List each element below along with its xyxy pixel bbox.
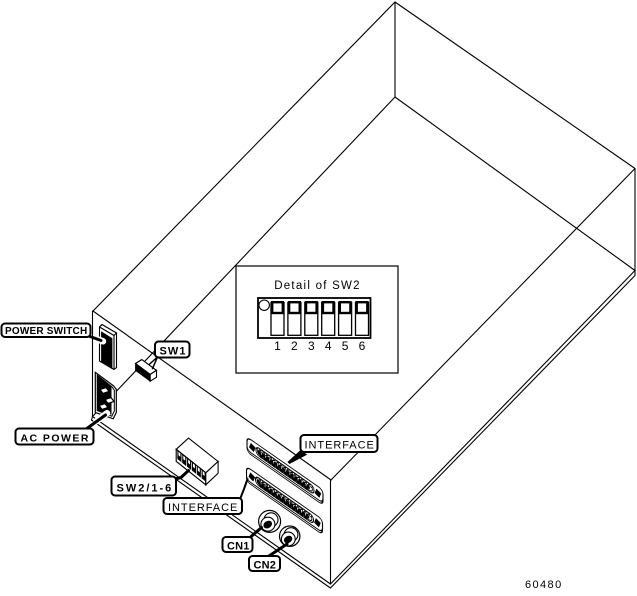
- svg-text:CN2: CN2: [254, 559, 277, 571]
- svg-text:3: 3: [308, 339, 315, 353]
- svg-text:60480: 60480: [525, 579, 563, 591]
- svg-text:INTERFACE: INTERFACE: [168, 502, 238, 514]
- svg-text:SW1: SW1: [160, 345, 187, 357]
- svg-text:AC POWER: AC POWER: [21, 432, 90, 444]
- svg-text:1: 1: [274, 339, 281, 353]
- svg-text:6: 6: [359, 339, 366, 353]
- svg-text:5: 5: [342, 339, 349, 353]
- svg-text:Detail of SW2: Detail of SW2: [274, 280, 361, 292]
- svg-text:SW2/1-6: SW2/1-6: [117, 482, 174, 494]
- svg-text:4: 4: [325, 339, 332, 353]
- svg-text:POWER SWITCH: POWER SWITCH: [5, 326, 87, 337]
- svg-text:CN1: CN1: [227, 540, 250, 552]
- svg-text:INTERFACE: INTERFACE: [305, 439, 375, 451]
- svg-text:2: 2: [291, 339, 298, 353]
